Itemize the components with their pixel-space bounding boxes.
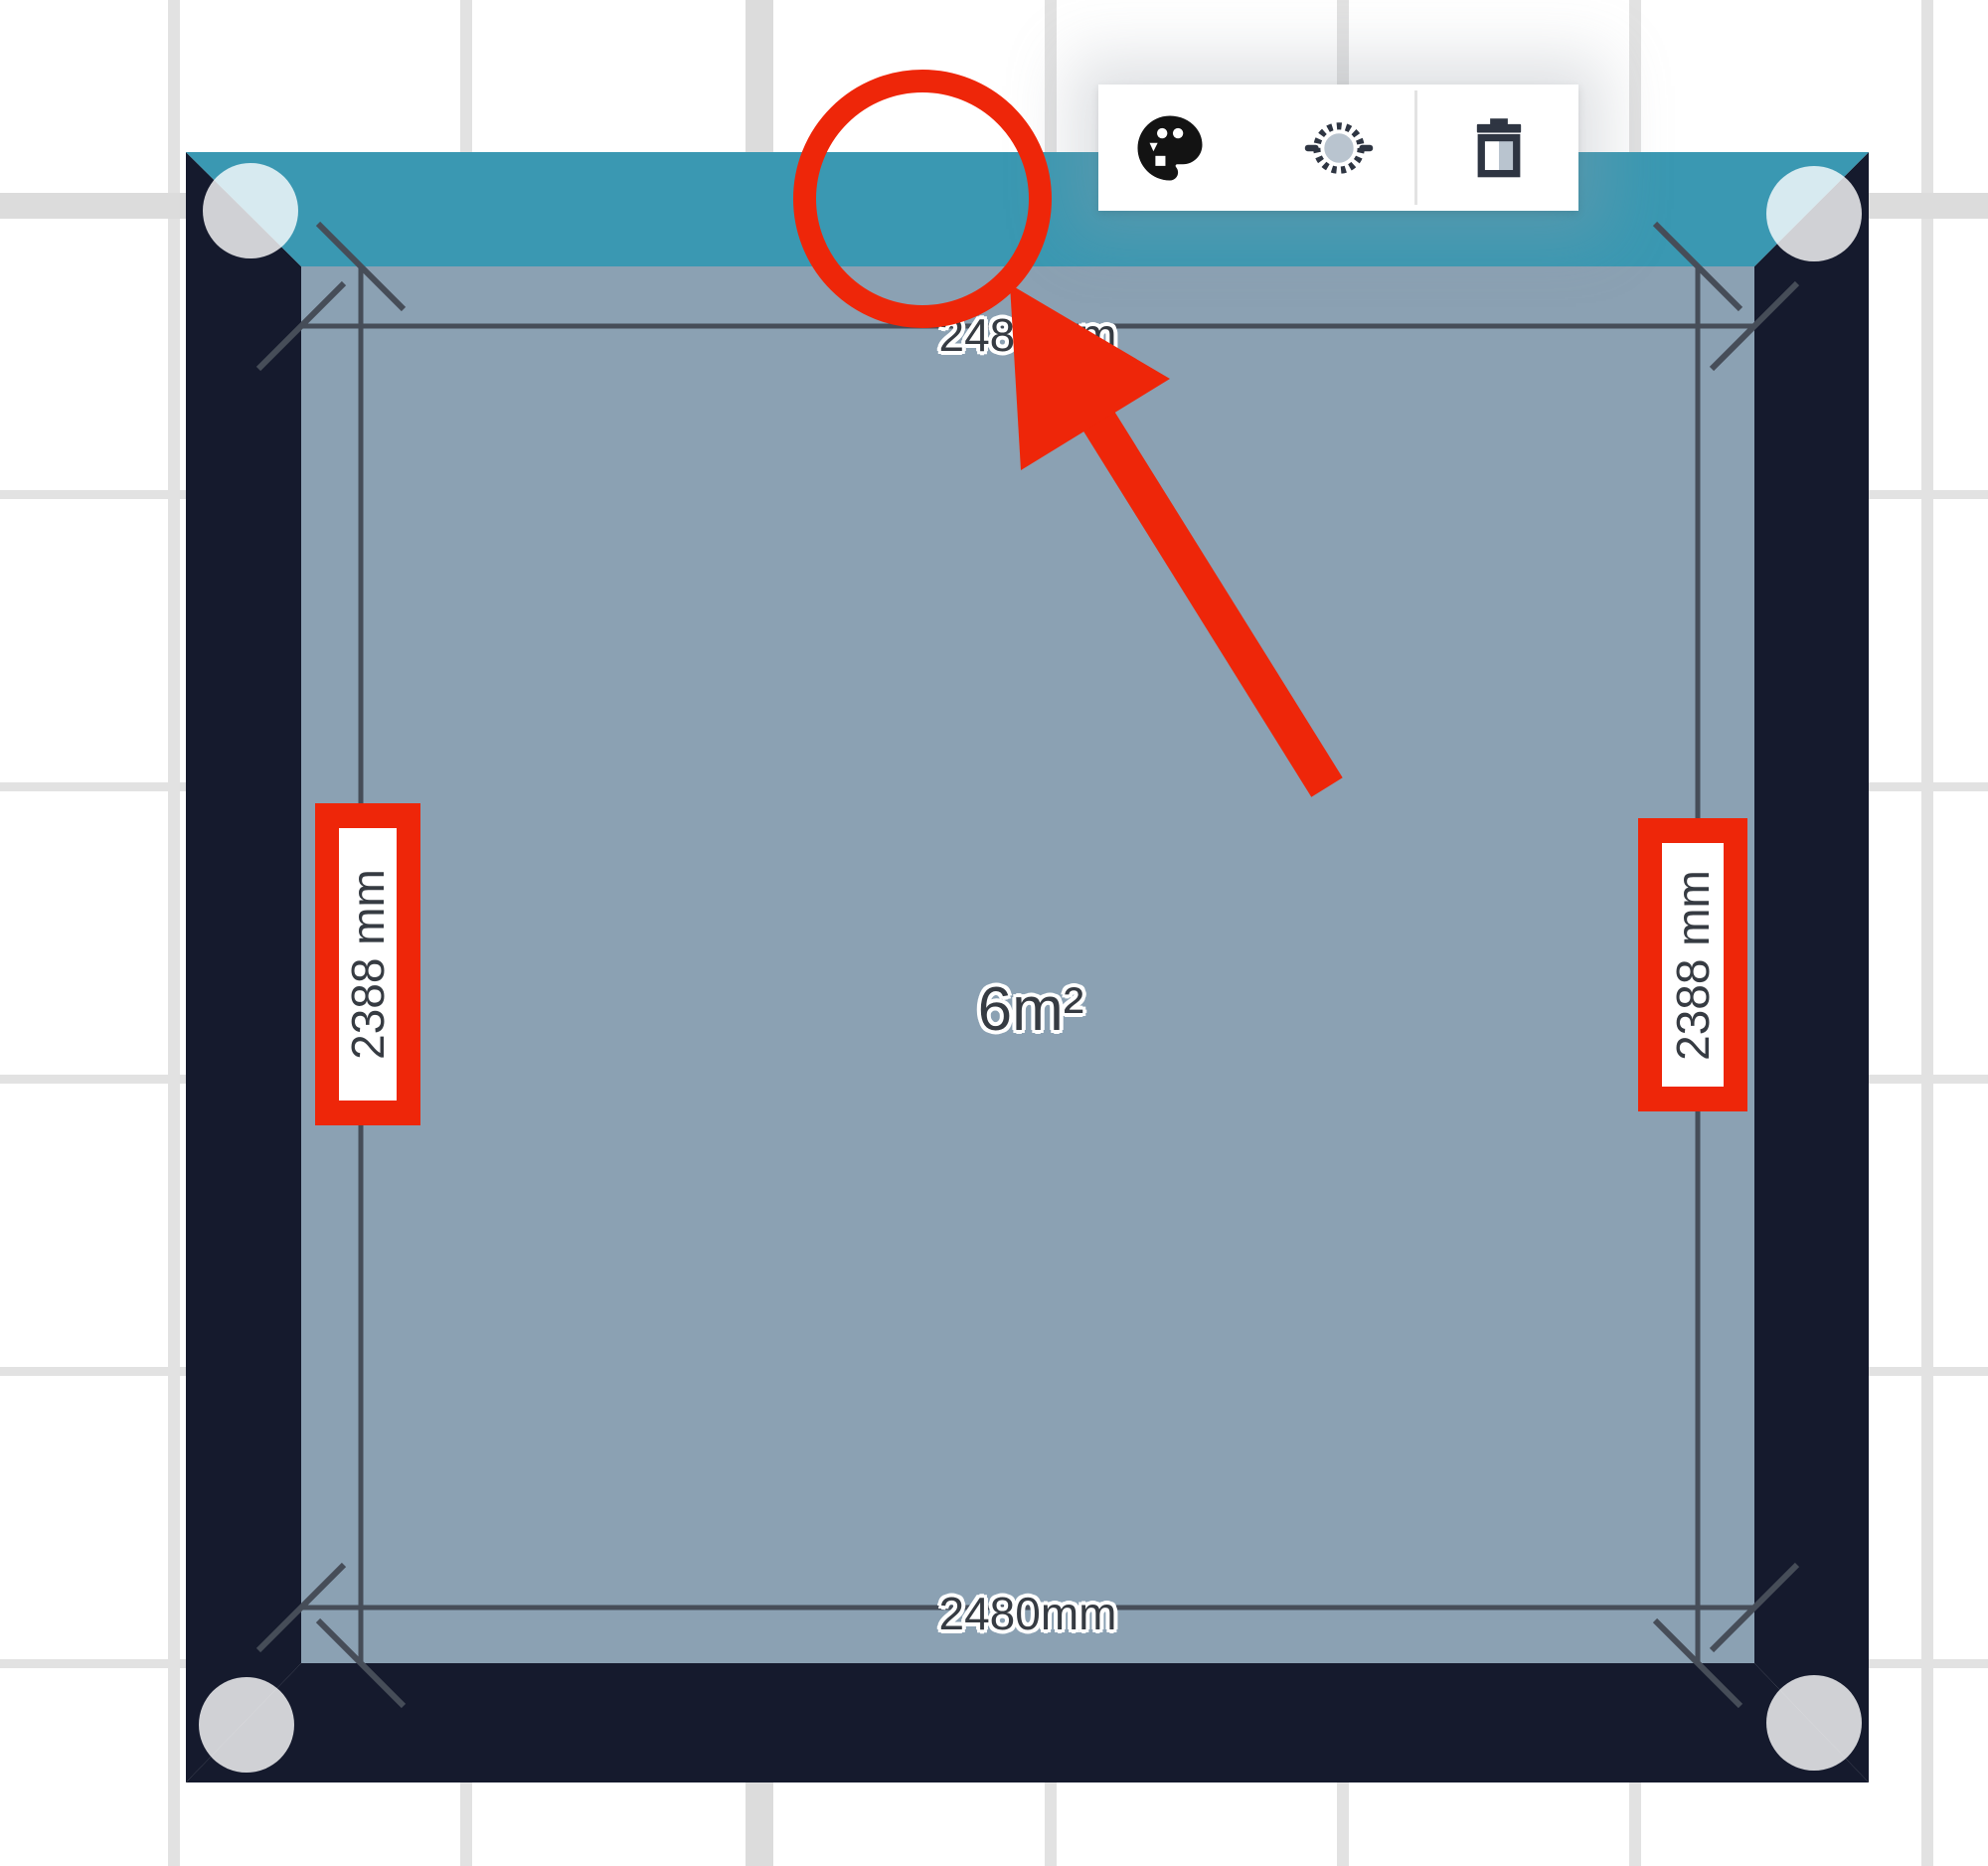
trash-icon (1461, 110, 1537, 186)
dimension-input-left-value: 2388 mm (341, 869, 395, 1060)
wall-top-selected[interactable] (186, 152, 1869, 266)
toolbar-divider (1414, 90, 1417, 205)
rotate-button[interactable] (1291, 92, 1387, 203)
floorplan-canvas[interactable]: 2480mm 2480mm 2388 mm 2388 mm 6m² (0, 0, 1988, 1866)
room-floor[interactable] (301, 266, 1754, 1663)
dimension-input-right[interactable]: 2388 mm (1662, 843, 1724, 1087)
dimension-input-right-value: 2388 mm (1666, 870, 1720, 1061)
dimension-label-top[interactable]: 2480mm (829, 308, 1227, 362)
dimension-input-right-highlight: 2388 mm (1638, 818, 1747, 1111)
wall-right[interactable] (1754, 152, 1869, 1782)
corner-node-bottom-left[interactable] (199, 1677, 294, 1773)
dimension-label-bottom[interactable]: 2480mm (829, 1587, 1227, 1640)
room-area-label: 6m² (832, 974, 1230, 1045)
rotate-icon (1303, 112, 1375, 184)
color-button[interactable] (1122, 92, 1218, 203)
corner-node-bottom-right[interactable] (1766, 1675, 1862, 1771)
corner-node-top-left[interactable] (203, 163, 298, 258)
dimension-input-left[interactable]: 2388 mm (339, 828, 397, 1101)
wall-bottom[interactable] (186, 1663, 1869, 1782)
dimension-input-left-highlight: 2388 mm (315, 803, 420, 1125)
wall-toolbar (1098, 85, 1578, 211)
delete-button[interactable] (1451, 92, 1547, 203)
wall-left[interactable] (186, 152, 301, 1782)
corner-node-top-right[interactable] (1766, 166, 1862, 261)
palette-icon (1131, 109, 1209, 187)
